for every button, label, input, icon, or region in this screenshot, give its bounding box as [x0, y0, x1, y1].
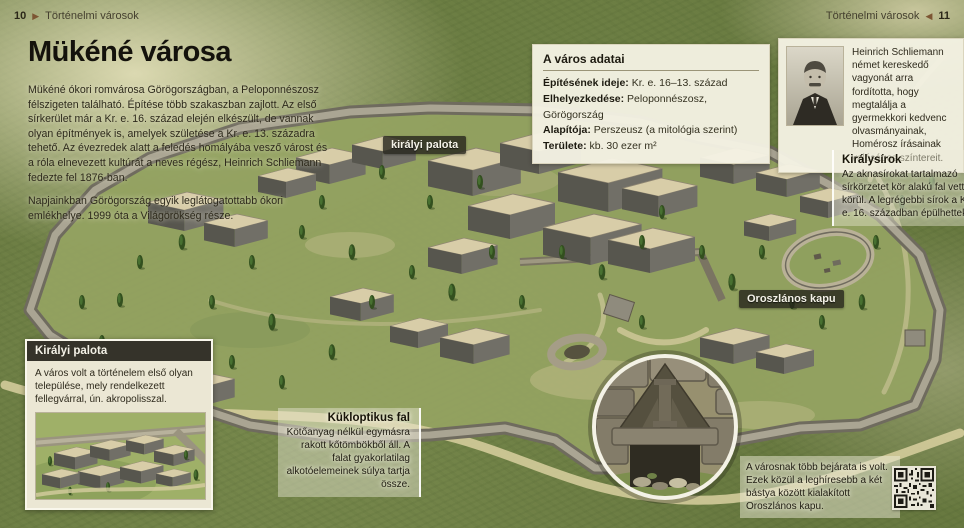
cyclopean-wall-note: Kükloptikus fal Kötőanyag nélkül egymásr…	[278, 408, 421, 497]
royal-palace-box-title: Királyi palota	[27, 341, 211, 361]
page-number-left: 10	[14, 10, 26, 22]
section-title-left: Történelmi városok	[45, 10, 139, 22]
fact-row: Elhelyezkedése: Peloponnészosz, Görögors…	[543, 92, 759, 124]
page-header-right: Történelmi városok ◀ 11	[826, 10, 950, 22]
qr-code	[892, 466, 936, 510]
royal-palace-box-text: A város volt a történelem első olyan tel…	[27, 361, 211, 410]
arrow-right-icon: ▶	[32, 12, 39, 21]
fact-value: Perszeusz (a mitológia szerint)	[591, 124, 737, 136]
book-spread: 10 ▶ Történelmi városok Történelmi város…	[0, 0, 964, 528]
royal-palace-photo	[35, 412, 206, 500]
fact-value: Kr. e. 16–13. század	[629, 77, 728, 89]
fact-row: Területe: kb. 30 ezer m²	[543, 139, 759, 155]
royal-tombs-title: Királysírok	[842, 154, 964, 166]
map-label-lion-gate: Oroszlános kapu	[739, 290, 844, 308]
fact-label: Területe:	[543, 140, 587, 152]
page-title: Mükéné városa	[28, 36, 330, 69]
section-title-right: Történelmi városok	[826, 10, 920, 22]
article: Mükéné városa Mükéné ókori romvárosa Gör…	[28, 36, 330, 232]
fact-label: Elhelyezkedése:	[543, 93, 624, 105]
royal-palace-box: Királyi palota A város volt a történelem…	[25, 339, 213, 510]
royal-tombs-text: Az aknasírokat tartalmazó sírkörzetet kö…	[842, 168, 964, 220]
schliemann-text: Heinrich Schliemann német kereskedő vagy…	[852, 46, 956, 165]
entrances-note: A városnak több bejárata is volt. Ezek k…	[740, 456, 900, 518]
fact-row: Alapítója: Perszeusz (a mitológia szerin…	[543, 123, 759, 139]
arrow-left-icon: ◀	[925, 12, 932, 21]
page-number-right: 11	[938, 10, 950, 22]
facts-title: A város adatai	[543, 52, 759, 71]
cyclopean-wall-title: Kükloptikus fal	[280, 412, 410, 424]
city-facts-box: A város adatai Építésének ideje: Kr. e. …	[532, 44, 770, 164]
entrances-text: A városnak több bejárata is volt. Ezek k…	[746, 461, 894, 513]
intro-paragraph-1: Mükéné ókori romvárosa Görögországban, a…	[28, 83, 330, 185]
cyclopean-wall-text: Kötőanyag nélkül egymásra rakott kőtömbö…	[280, 426, 410, 491]
page-header-left: 10 ▶ Történelmi városok	[14, 10, 139, 22]
fact-label: Alapítója:	[543, 124, 591, 136]
schliemann-portrait-photo	[786, 46, 844, 126]
map-label-royal-palace: királyi palota	[383, 136, 466, 154]
intro-paragraph-2: Napjainkban Görögország egyik leglátogat…	[28, 194, 330, 223]
qr-code-pattern	[894, 468, 934, 508]
fact-label: Építésének ideje:	[543, 77, 629, 89]
royal-tombs-note: Királysírok Az aknasírokat tartalmazó sí…	[832, 150, 964, 226]
fact-value: kb. 30 ezer m²	[587, 140, 657, 152]
fact-row: Építésének ideje: Kr. e. 16–13. század	[543, 76, 759, 92]
